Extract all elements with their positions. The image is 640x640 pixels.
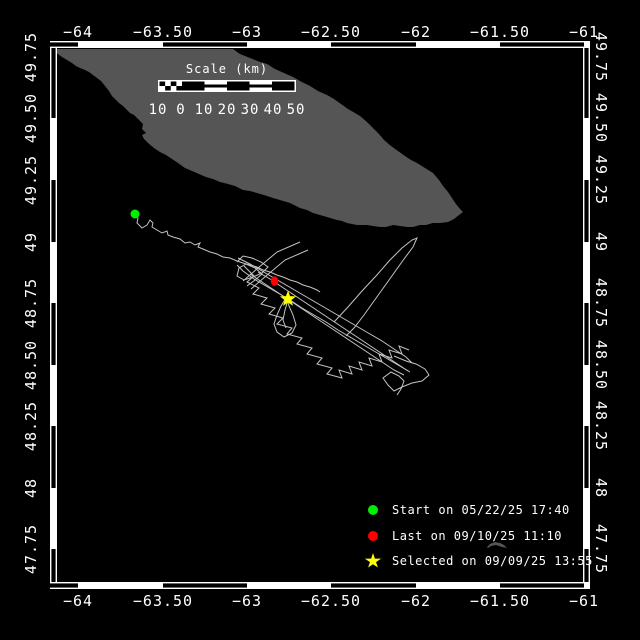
frame-tick-top: [500, 42, 584, 46]
lat-tick-label-right: 49: [592, 232, 610, 252]
frame-tick-bottom: [331, 583, 416, 587]
lat-tick-label-left: 49.75: [22, 32, 40, 82]
scale-segment-striped: [205, 85, 228, 88]
lon-tick-label-bottom: −63.50: [133, 592, 193, 610]
track-path[interactable]: [334, 238, 417, 336]
lat-tick-label-left: 49: [22, 232, 40, 252]
lon-tick-label-top: −63: [232, 23, 262, 41]
frame-tick-right: [584, 48, 588, 118]
scale-tick-label: 10: [195, 102, 214, 118]
scale-tick-label: 30: [241, 102, 260, 118]
track-path[interactable]: [237, 256, 268, 286]
frame-tick-bottom: [500, 583, 584, 587]
frame-tick-left: [51, 48, 55, 118]
lat-tick-label-right: 49.25: [592, 155, 610, 205]
last-position-marker[interactable]: [271, 276, 279, 286]
frame-tick-top: [163, 42, 247, 46]
lon-tick-label-top: −61.50: [470, 23, 530, 41]
lat-tick-label-left: 49.25: [22, 155, 40, 205]
scale-segment-check: [160, 82, 166, 87]
scale-segment-black: [272, 82, 295, 91]
scale-tick-label: 50: [287, 102, 306, 118]
lon-tick-label-bottom: −61: [569, 592, 599, 610]
lat-tick-label-right: 48.50: [592, 340, 610, 390]
lat-tick-label-left: 47.75: [22, 524, 40, 574]
lon-tick-label-bottom: −61.50: [470, 592, 530, 610]
track-path[interactable]: [135, 214, 320, 292]
last-marker-icon: [368, 531, 378, 541]
track-path[interactable]: [258, 272, 408, 371]
lon-tick-label-top: −64: [63, 23, 93, 41]
track-path[interactable]: [238, 258, 412, 363]
frame-tick-bottom: [50, 583, 78, 587]
frame-tick-top: [331, 42, 416, 46]
start-position-marker[interactable]: [131, 210, 140, 219]
frame-tick-top: [50, 42, 78, 46]
frame-tick-right: [584, 426, 588, 488]
lat-tick-label-right: 47.75: [592, 524, 610, 574]
scale-segment-check: [171, 82, 177, 87]
frame-tick-left: [51, 180, 55, 242]
scale-segment-check: [176, 86, 182, 91]
legend-selected-label: Selected on 09/09/25 13:55: [392, 553, 593, 569]
frame-tick-bottom: [163, 583, 247, 587]
lon-tick-label-top: −62: [401, 23, 431, 41]
frame-tick-left: [51, 303, 55, 365]
lon-tick-label-top: −62.50: [301, 23, 361, 41]
lat-tick-label-right: 48.25: [592, 401, 610, 451]
lat-tick-label-left: 48.50: [22, 340, 40, 390]
legend-start-label: Start on 05/22/25 17:40: [392, 502, 570, 518]
tracking-map-page: −64−64−63.50−63.50−63−63−62.50−62.50−62−…: [0, 0, 640, 640]
lat-tick-label-left: 48.25: [22, 401, 40, 451]
legend-last-label: Last on 09/10/25 11:10: [392, 528, 562, 544]
lat-tick-label-right: 48: [592, 478, 610, 498]
frame-tick-right: [584, 180, 588, 242]
lon-tick-label-bottom: −62.50: [301, 592, 361, 610]
lat-tick-label-left: 48.75: [22, 278, 40, 328]
scale-tick-label: 40: [264, 102, 283, 118]
scale-segment-black: [227, 82, 250, 91]
lon-tick-label-bottom: −64: [63, 592, 93, 610]
track-path[interactable]: [383, 356, 429, 395]
lat-tick-label-left: 49.50: [22, 93, 40, 143]
frame-tick-left: [51, 426, 55, 488]
lon-tick-label-bottom: −62: [401, 592, 431, 610]
lat-tick-label-right: 48.75: [592, 278, 610, 328]
scale-tick-label: 10: [149, 102, 168, 118]
lat-tick-label-right: 49.50: [592, 93, 610, 143]
lon-tick-label-top: −63.50: [133, 23, 193, 41]
scale-segment-striped: [250, 85, 273, 88]
frame-tick-left: [51, 549, 55, 582]
scale-segment-check: [165, 86, 171, 91]
frame-tick-right: [584, 303, 588, 365]
scale-tick-label: 20: [218, 102, 237, 118]
start-marker-icon: [368, 505, 378, 515]
lon-tick-label-bottom: −63: [232, 592, 262, 610]
map-canvas[interactable]: −64−64−63.50−63.50−63−63−62.50−62.50−62−…: [0, 0, 640, 640]
scale-bar-title: Scale (km): [186, 62, 268, 76]
scale-tick-label: 0: [176, 102, 185, 118]
scale-segment-black: [182, 82, 205, 91]
lat-tick-label-left: 48: [22, 478, 40, 498]
lat-tick-label-right: 49.75: [592, 32, 610, 82]
